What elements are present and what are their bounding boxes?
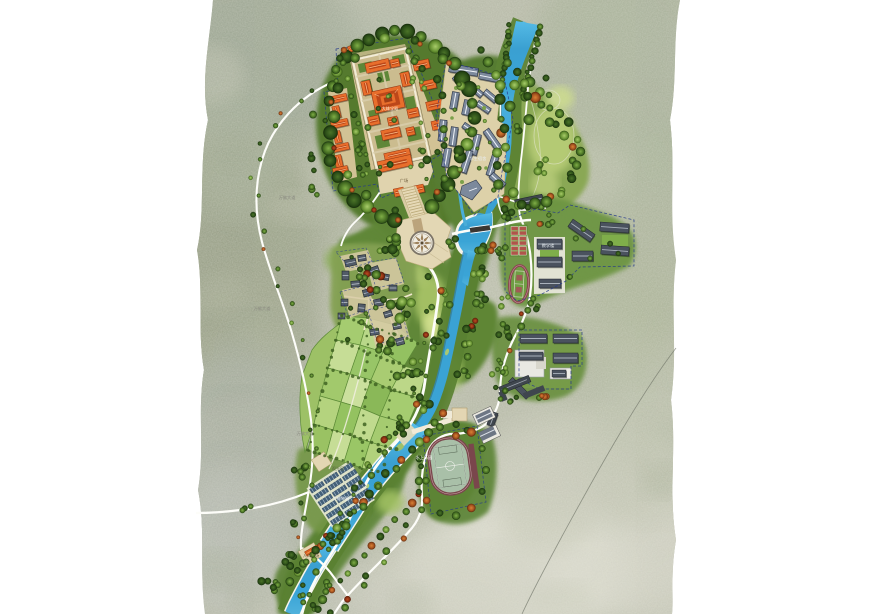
svg-text:观光园: 观光园 [332,465,345,472]
svg-text:教学楼: 教学楼 [542,242,555,249]
svg-text:万佛大道: 万佛大道 [297,430,315,437]
svg-text:万佛大道: 万佛大道 [254,305,272,312]
svg-text:广场: 广场 [400,177,408,184]
svg-text:大棚种植: 大棚种植 [333,495,350,502]
svg-text:水上乐园: 水上乐园 [416,454,433,461]
svg-text:学生宿舍: 学生宿舍 [470,155,488,162]
svg-text:入口广场: 入口广场 [303,552,320,559]
svg-text:大雄宝殿: 大雄宝殿 [382,105,400,112]
svg-text:万佛大道: 万佛大道 [279,194,297,201]
